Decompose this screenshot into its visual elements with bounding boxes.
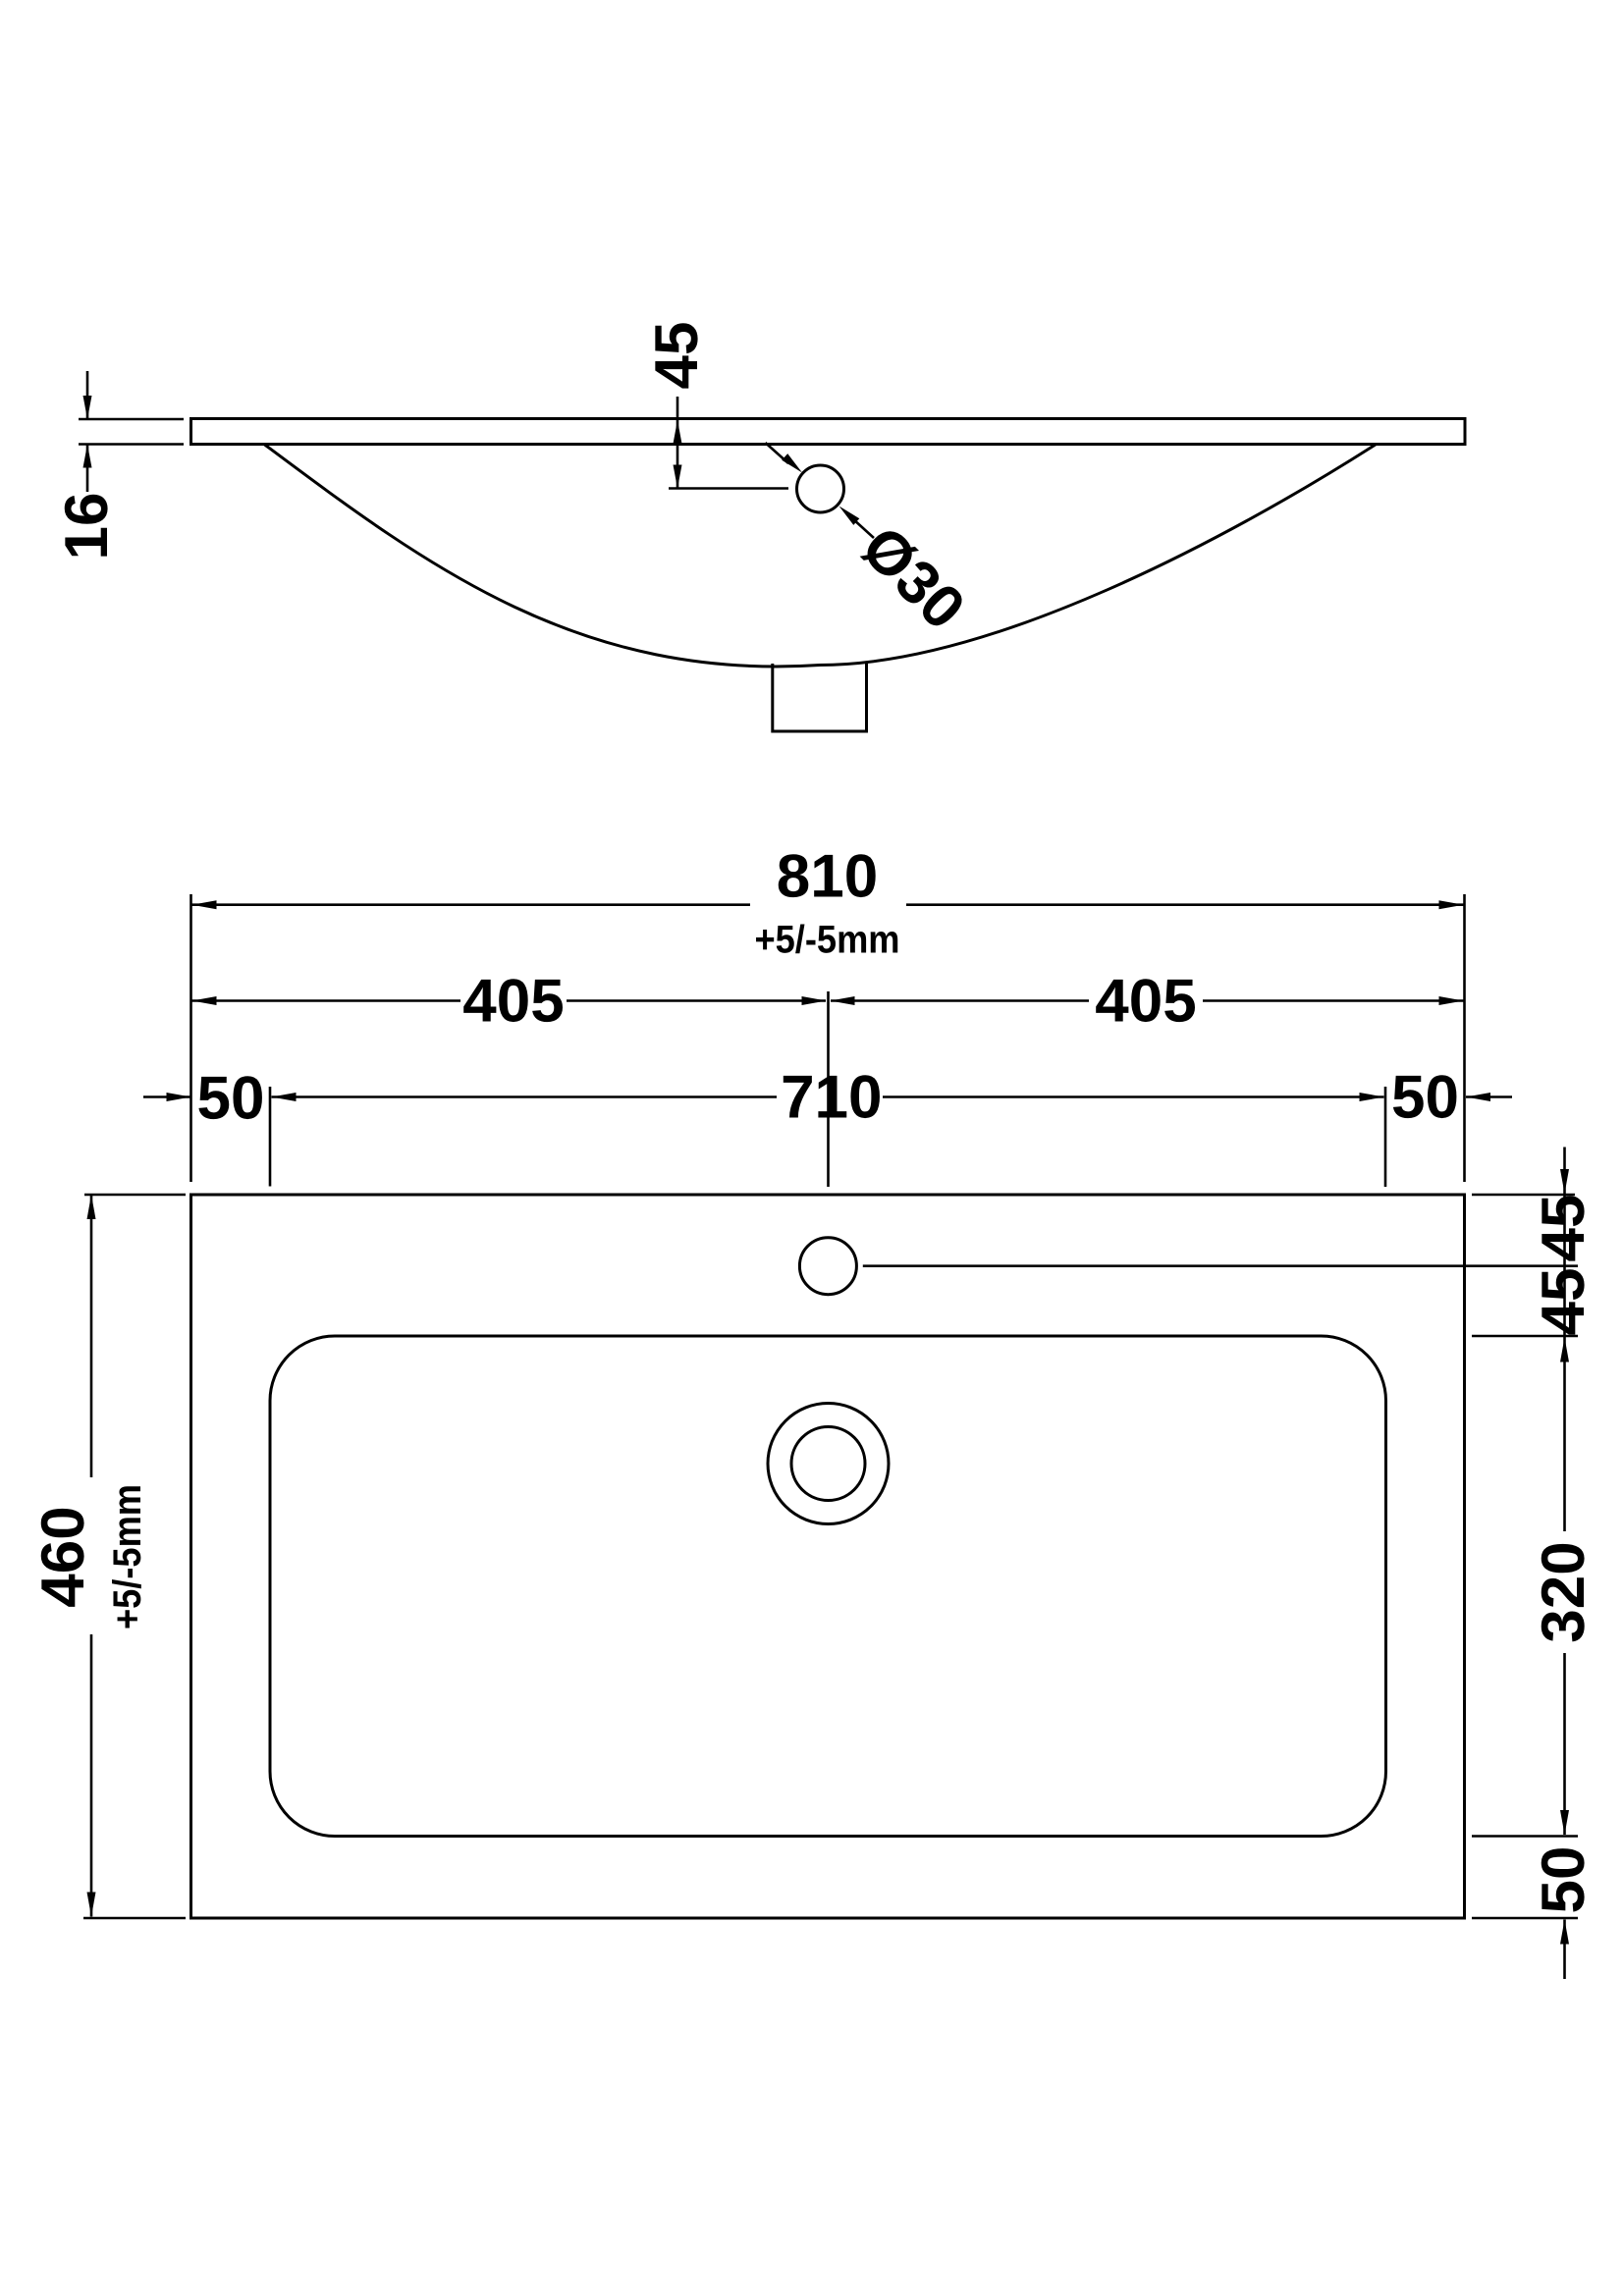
- svg-text:810: 810: [777, 843, 878, 911]
- svg-text:50: 50: [197, 1065, 265, 1133]
- svg-text:710: 710: [781, 1064, 882, 1132]
- svg-text:45: 45: [643, 322, 711, 390]
- svg-text:+5/-5mm: +5/-5mm: [106, 1484, 149, 1629]
- svg-text:45: 45: [1530, 1195, 1597, 1262]
- svg-text:50: 50: [1391, 1064, 1459, 1132]
- svg-text:+5/-5mm: +5/-5mm: [755, 919, 900, 962]
- svg-text:405: 405: [1095, 968, 1196, 1036]
- svg-text:50: 50: [1530, 1846, 1597, 1914]
- svg-text:320: 320: [1530, 1541, 1597, 1642]
- svg-text:405: 405: [462, 968, 564, 1036]
- svg-text:45: 45: [1530, 1268, 1597, 1336]
- svg-text:16: 16: [53, 493, 121, 561]
- svg-text:460: 460: [29, 1506, 97, 1607]
